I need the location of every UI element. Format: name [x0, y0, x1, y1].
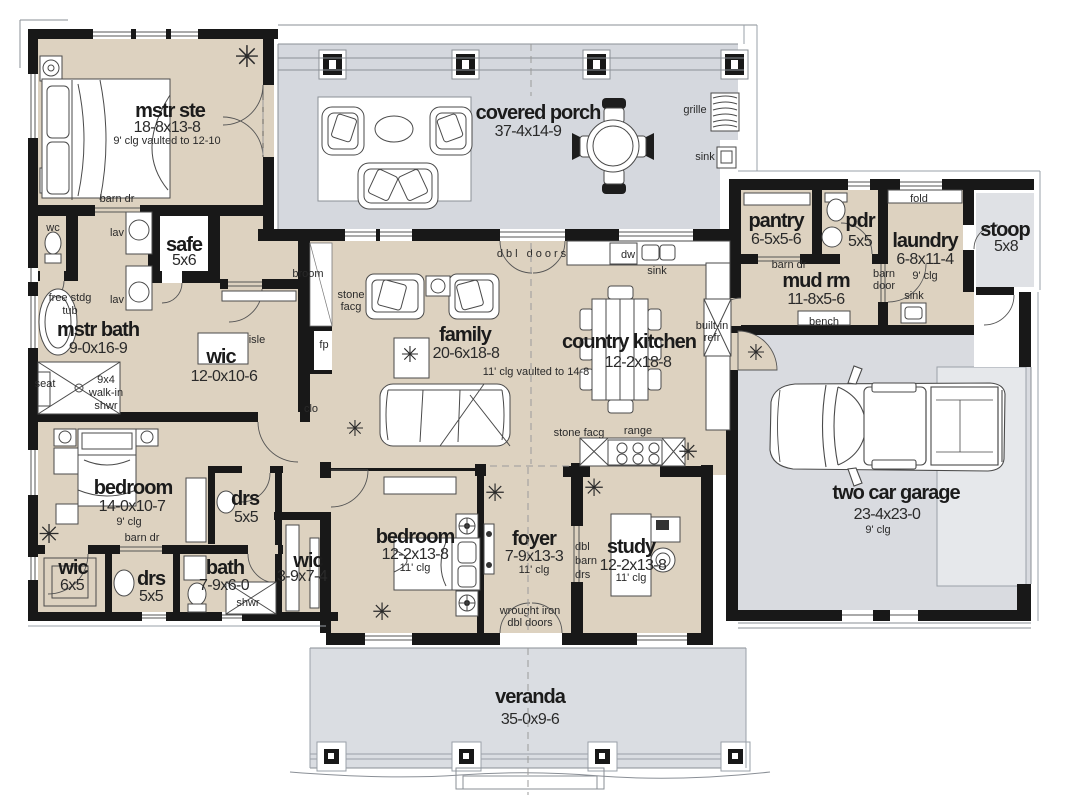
- svg-text:9' clg: 9' clg: [865, 524, 890, 536]
- svg-text:free stdg: free stdg: [49, 292, 92, 304]
- svg-text:covered porch: covered porch: [476, 102, 601, 124]
- svg-text:wrought iron: wrought iron: [499, 605, 561, 617]
- svg-text:shwr: shwr: [94, 400, 118, 412]
- svg-text:20-6x18-8: 20-6x18-8: [433, 345, 500, 362]
- svg-text:bath: bath: [206, 557, 244, 579]
- svg-text:bedroom: bedroom: [94, 477, 173, 499]
- svg-text:wic: wic: [205, 346, 236, 368]
- svg-text:barn: barn: [873, 268, 895, 280]
- svg-text:wc: wc: [45, 222, 60, 234]
- svg-text:bench: bench: [809, 316, 839, 328]
- svg-text:sink: sink: [904, 290, 924, 302]
- svg-text:range: range: [624, 425, 652, 437]
- svg-text:stone facg: stone facg: [554, 427, 605, 439]
- svg-text:6-8x11-4: 6-8x11-4: [896, 251, 954, 268]
- svg-text:drs: drs: [231, 488, 260, 510]
- svg-text:country kitchen: country kitchen: [562, 331, 696, 353]
- svg-text:lav: lav: [110, 227, 125, 239]
- svg-text:lav: lav: [110, 294, 125, 306]
- svg-text:drs: drs: [137, 568, 166, 590]
- svg-text:walk-in: walk-in: [88, 387, 123, 399]
- svg-text:bedroom: bedroom: [376, 526, 455, 548]
- svg-text:9' clg vaulted to 12-10: 9' clg vaulted to 12-10: [113, 135, 220, 147]
- svg-text:5x8: 5x8: [994, 238, 1019, 255]
- svg-text:grille: grille: [683, 104, 706, 116]
- svg-text:11-8x5-6: 11-8x5-6: [787, 291, 845, 308]
- svg-text:37-4x14-9: 37-4x14-9: [495, 123, 562, 140]
- svg-text:sink: sink: [695, 151, 715, 163]
- svg-text:two car garage: two car garage: [832, 482, 960, 504]
- svg-text:broom: broom: [292, 268, 323, 280]
- svg-text:clo: clo: [304, 403, 318, 415]
- svg-text:12-2x18-8: 12-2x18-8: [605, 354, 672, 371]
- svg-text:5x5: 5x5: [848, 233, 873, 250]
- svg-text:sink: sink: [647, 265, 667, 277]
- svg-text:laundry: laundry: [892, 230, 959, 252]
- svg-text:barn dr: barn dr: [100, 193, 135, 205]
- svg-text:9-0x16-9: 9-0x16-9: [69, 340, 128, 357]
- svg-text:6-5x5-6: 6-5x5-6: [751, 231, 802, 248]
- svg-text:dbl: dbl: [575, 541, 590, 553]
- svg-text:barn: barn: [575, 555, 597, 567]
- svg-text:11' clg vaulted to 14-8: 11' clg vaulted to 14-8: [483, 366, 589, 378]
- svg-text:✳: ✳: [38, 519, 60, 549]
- svg-text:drs: drs: [575, 569, 591, 581]
- svg-text:✳: ✳: [346, 416, 364, 441]
- svg-text:shwr: shwr: [236, 597, 260, 609]
- svg-text:foyer: foyer: [512, 528, 557, 550]
- svg-text:isle: isle: [249, 334, 266, 346]
- svg-text:seat: seat: [35, 378, 56, 390]
- svg-text:11' clg: 11' clg: [400, 562, 431, 574]
- svg-text:✳: ✳: [747, 340, 765, 365]
- svg-text:✳: ✳: [584, 475, 604, 502]
- svg-text:✳: ✳: [372, 599, 392, 626]
- svg-text:dbl doors: dbl doors: [507, 617, 553, 629]
- svg-text:mud rm: mud rm: [782, 270, 850, 292]
- svg-text:6x5: 6x5: [60, 577, 85, 594]
- svg-text:9' clg: 9' clg: [912, 270, 937, 282]
- svg-text:pdr: pdr: [845, 210, 875, 232]
- svg-text:5x5: 5x5: [139, 588, 164, 605]
- svg-text:wic: wic: [57, 557, 88, 579]
- svg-text:stone: stone: [338, 289, 365, 301]
- svg-text:door: door: [873, 280, 895, 292]
- svg-text:fold: fold: [910, 193, 928, 205]
- svg-text:✳: ✳: [401, 342, 419, 367]
- svg-text:dbl doors: dbl doors: [497, 248, 569, 260]
- svg-text:fp: fp: [319, 339, 328, 351]
- svg-text:9' clg: 9' clg: [116, 516, 141, 528]
- svg-text:veranda: veranda: [495, 686, 567, 708]
- svg-text:11' clg: 11' clg: [616, 572, 647, 584]
- svg-text:✳: ✳: [234, 41, 259, 74]
- svg-text:12-0x10-6: 12-0x10-6: [191, 368, 258, 385]
- svg-text:5x5: 5x5: [234, 509, 259, 526]
- svg-text:35-0x9-6: 35-0x9-6: [501, 711, 560, 728]
- svg-text:✳: ✳: [485, 480, 505, 507]
- svg-text:3-9x7-4: 3-9x7-4: [277, 568, 328, 585]
- svg-text:pantry: pantry: [748, 210, 805, 232]
- svg-text:tub: tub: [62, 305, 77, 317]
- svg-text:dw: dw: [621, 249, 635, 261]
- svg-text:study: study: [607, 536, 657, 558]
- svg-text:mstr bath: mstr bath: [57, 319, 139, 341]
- svg-text:23-4x23-0: 23-4x23-0: [854, 506, 921, 523]
- svg-text:built-in: built-in: [696, 320, 728, 332]
- svg-text:barn dr: barn dr: [125, 532, 160, 544]
- svg-text:7-9x13-3: 7-9x13-3: [505, 548, 564, 565]
- svg-text:5x6: 5x6: [172, 252, 197, 269]
- svg-text:12-2x13-8: 12-2x13-8: [382, 546, 449, 563]
- svg-text:11' clg: 11' clg: [519, 564, 550, 576]
- svg-text:14-0x10-7: 14-0x10-7: [99, 498, 166, 515]
- svg-text:9x4: 9x4: [97, 374, 115, 386]
- svg-text:facg: facg: [341, 301, 362, 313]
- svg-text:family: family: [439, 324, 493, 346]
- svg-text:✳: ✳: [678, 439, 698, 466]
- svg-text:refr: refr: [704, 332, 721, 344]
- svg-text:7-9x6-0: 7-9x6-0: [199, 577, 250, 594]
- svg-text:18-8x13-8: 18-8x13-8: [134, 119, 201, 136]
